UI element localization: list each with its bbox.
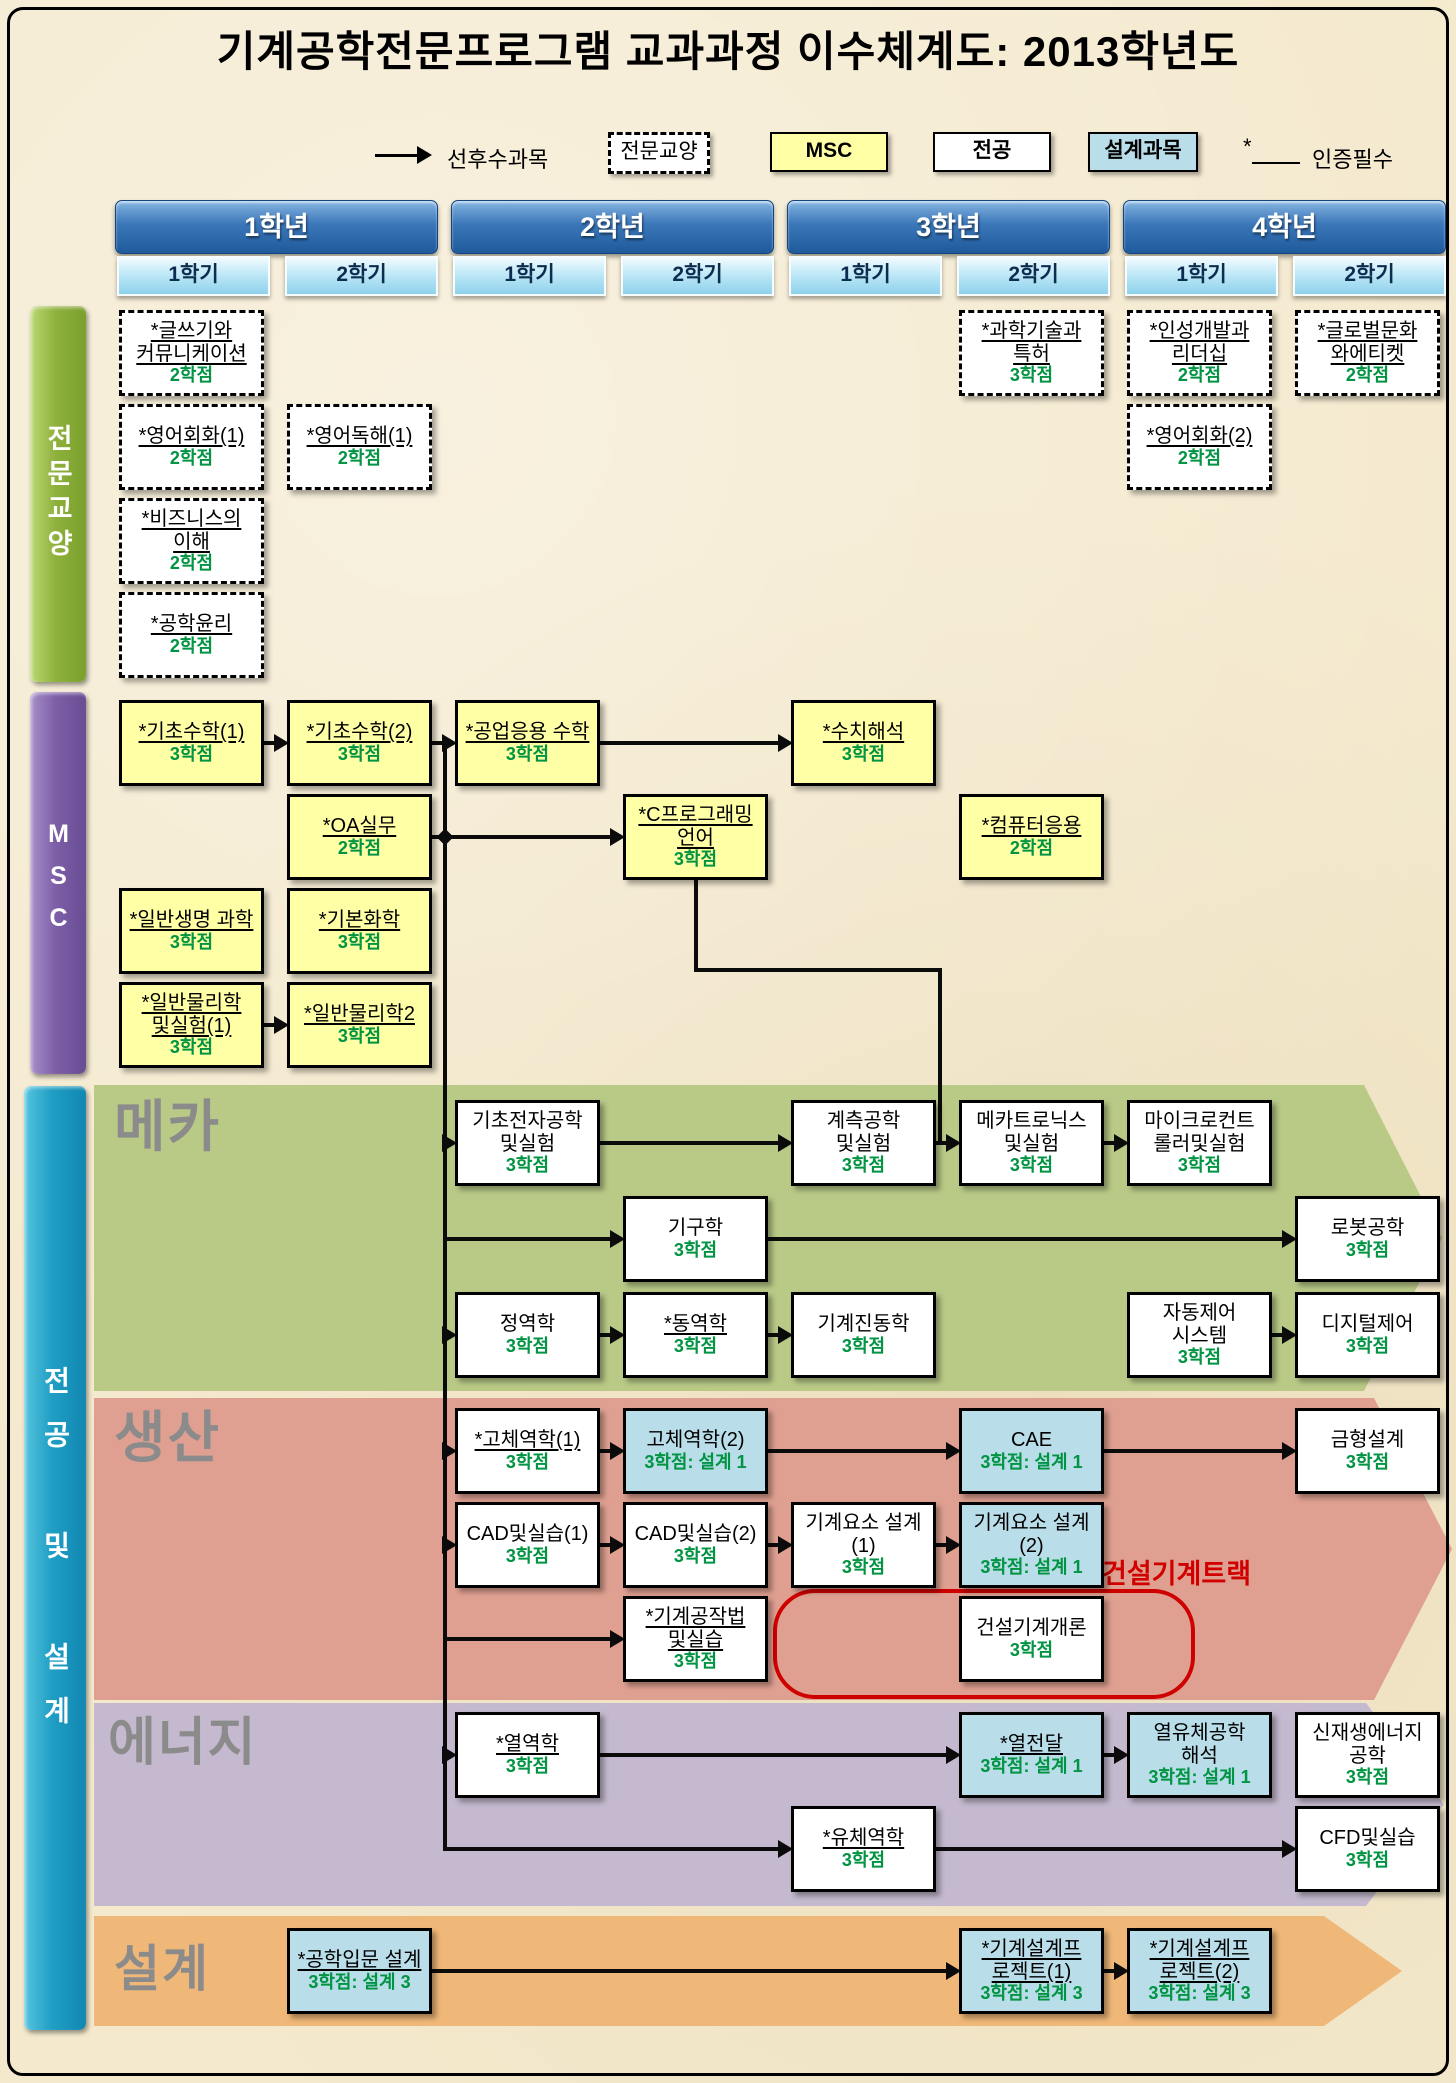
course-name: 신재생에너지 공학 <box>1301 1722 1434 1767</box>
course-name: 금형설계 <box>1331 1429 1405 1451</box>
course-credit: 2학점 <box>338 838 381 859</box>
curriculum-flowchart-page: 기계공학전문프로그램 교과과정 이수체계도: 2013학년도 선후수과목 전문교… <box>0 0 1456 2083</box>
course-name: CFD및실습 <box>1319 1827 1415 1849</box>
course-credit: 3학점 <box>506 1452 549 1473</box>
course-name: *영어회화(1) <box>139 425 245 447</box>
course-ds-intro: *공학입문 설계3학점: 설계 3 <box>287 1928 432 2014</box>
course-name: 로봇공학 <box>1331 1217 1405 1239</box>
course-name: 정역학 <box>500 1313 555 1335</box>
course-en-fluid: *유체역학3학점 <box>791 1806 936 1892</box>
course-msc-math1: *기초수학(1)3학점 <box>119 700 264 786</box>
prereq-line <box>938 968 942 1143</box>
course-name: *C프로그래밍 언어 <box>629 804 762 849</box>
course-credit: 3학점 <box>1010 365 1053 386</box>
prereq-line <box>430 835 613 839</box>
semester-tab-4-1: 1학기 <box>1125 256 1278 296</box>
legend-msc-sample: MSC <box>770 132 888 172</box>
course-name: *OA실무 <box>323 815 396 837</box>
course-credit: 2학점 <box>1178 365 1221 386</box>
course-name: 기초전자공학 및실험 <box>461 1110 594 1155</box>
course-pr-cad1: CAD및실습(1)3학점 <box>455 1502 600 1588</box>
prerequisite-arrowhead-icon <box>417 146 432 164</box>
prereq-line <box>443 1237 613 1241</box>
course-name: 기계요소 설계(2) <box>965 1512 1098 1557</box>
course-ge-engconv1: *영어회화(1)2학점 <box>119 404 264 490</box>
year-header-4: 4학년 <box>1123 200 1446 254</box>
course-name: *열전달 <box>1000 1733 1063 1755</box>
semester-tab-2-1: 1학기 <box>453 256 606 296</box>
prereq-line <box>443 1637 613 1641</box>
course-name: *열역학 <box>496 1733 559 1755</box>
course-credit: 3학점 <box>506 1546 549 1567</box>
course-pr-cad2: CAD및실습(2)3학점 <box>623 1502 768 1588</box>
course-pr-solid1: *고체역학(1)3학점 <box>455 1408 600 1494</box>
course-credit: 3학점 <box>338 744 381 765</box>
band-production-label: 생산 <box>114 1410 221 1466</box>
course-mk-dynamics: *동역학3학점 <box>623 1292 768 1378</box>
prereq-line <box>443 743 447 1849</box>
course-msc-engmath: *공업응용 수학3학점 <box>455 700 600 786</box>
semester-tab-1-2: 2학기 <box>285 256 438 296</box>
legend-prerequisite-label: 선후수과목 <box>447 142 548 174</box>
course-credit: 3학점: 설계 1 <box>644 1452 746 1473</box>
course-credit: 3학점 <box>506 1155 549 1176</box>
band-energy-label: 에너지 <box>108 1717 258 1769</box>
construction-track-label: 건설기계트랙 <box>1102 1552 1251 1591</box>
course-pr-machining: *기계공작법 및실습3학점 <box>623 1596 768 1682</box>
course-name: *비즈니스의 이해 <box>125 508 258 553</box>
semester-tab-3-1: 1학기 <box>789 256 942 296</box>
course-name: *유체역학 <box>823 1827 904 1849</box>
course-name: 고체역학(2) <box>646 1429 744 1451</box>
sidebar-major-design: 전공 및 설계 <box>24 1086 86 2030</box>
course-name: *글쓰기와 커뮤니케이션 <box>125 320 258 365</box>
course-msc-bio: *일반생명 과학3학점 <box>119 888 264 974</box>
course-mk-measure: 계측공학 및실험3학점 <box>791 1100 936 1186</box>
course-name: CAE <box>1011 1429 1052 1451</box>
course-name: *수치해석 <box>823 721 904 743</box>
course-name: 기구학 <box>668 1217 723 1239</box>
semester-tab-3-2: 2학기 <box>957 256 1110 296</box>
course-credit: 3학점 <box>1346 1850 1389 1871</box>
course-credit: 3학점 <box>1346 1336 1389 1357</box>
course-name: 자동제어 시스템 <box>1133 1302 1266 1347</box>
course-name: *기계설계프 로젝트(1) <box>965 1938 1098 1983</box>
course-msc-chem: *기본화학3학점 <box>287 888 432 974</box>
course-credit: 3학점: 설계 1 <box>980 1452 1082 1473</box>
course-name: *글로벌문화 와에티켓 <box>1301 320 1434 365</box>
course-mk-mechatron: 메카트로닉스 및실험3학점 <box>959 1100 1104 1186</box>
course-mk-kinematics: 기구학3학점 <box>623 1196 768 1282</box>
course-name: 건설기계개론 <box>976 1617 1086 1639</box>
course-credit: 3학점 <box>506 1336 549 1357</box>
course-name: *기초수학(1) <box>139 721 245 743</box>
course-credit: 3학점 <box>674 1651 717 1672</box>
course-credit: 3학점 <box>842 1557 885 1578</box>
course-credit: 2학점 <box>170 448 213 469</box>
course-credit: 3학점 <box>1010 1155 1053 1176</box>
prereq-line <box>766 1449 949 1453</box>
course-credit: 3학점 <box>842 1850 885 1871</box>
course-name: *기초수학(2) <box>307 721 413 743</box>
course-name: 메카트로닉스 및실험 <box>965 1110 1098 1155</box>
year-header-1: 1학년 <box>115 200 438 254</box>
course-name: *영어회화(2) <box>1147 425 1253 447</box>
course-name: CAD및실습(1) <box>467 1523 589 1545</box>
course-mk-electronics: 기초전자공학 및실험3학점 <box>455 1100 600 1186</box>
prereq-line <box>598 1141 781 1145</box>
course-credit: 2학점 <box>170 636 213 657</box>
course-ge-engread1: *영어독해(1)2학점 <box>287 404 432 490</box>
course-name: *기계공작법 및실습 <box>629 1606 762 1651</box>
course-msc-phys2: *일반물리학23학점 <box>287 982 432 1068</box>
course-credit: 3학점 <box>842 744 885 765</box>
course-name: *컴퓨터응용 <box>982 815 1082 837</box>
course-name: 기계요소 설계(1) <box>797 1512 930 1557</box>
legend: 선후수과목 전문교양 MSC 전공 설계과목 * 인증필수 <box>0 132 1456 178</box>
band-design-label: 설계 <box>114 1944 210 1994</box>
course-pr-elem2: 기계요소 설계(2)3학점: 설계 1 <box>959 1502 1104 1588</box>
course-credit: 3학점 <box>1010 1640 1053 1661</box>
course-ge-engconv2: *영어회화(2)2학점 <box>1127 404 1272 490</box>
course-credit: 3학점 <box>674 1336 717 1357</box>
course-credit: 3학점: 설계 1 <box>980 1756 1082 1777</box>
semester-tab-1-1: 1학기 <box>117 256 270 296</box>
course-msc-c: *C프로그래밍 언어3학점 <box>623 794 768 880</box>
legend-required-star: * <box>1243 134 1252 160</box>
course-credit: 3학점: 설계 3 <box>308 1972 410 1993</box>
course-credit: 2학점 <box>338 448 381 469</box>
course-credit: 3학점: 설계 3 <box>980 1983 1082 2004</box>
course-credit: 3학점 <box>1178 1155 1221 1176</box>
course-credit: 3학점 <box>170 1037 213 1058</box>
prerequisite-arrow-icon <box>375 154 419 157</box>
course-name: *동역학 <box>664 1313 727 1335</box>
course-credit: 3학점 <box>1178 1347 1221 1368</box>
course-name: 계측공학 및실험 <box>797 1110 930 1155</box>
course-name: *일반생명 과학 <box>130 909 254 931</box>
course-credit: 3학점 <box>1346 1240 1389 1261</box>
legend-design-sample: 설계과목 <box>1088 132 1198 172</box>
prereq-line <box>1102 1449 1285 1453</box>
course-credit: 3학점 <box>506 744 549 765</box>
course-ge-patent: *과학기술과 특허3학점 <box>959 310 1104 396</box>
course-mk-statics: 정역학3학점 <box>455 1292 600 1378</box>
prereq-line <box>766 1237 1285 1241</box>
course-pr-cae: CAE3학점: 설계 1 <box>959 1408 1104 1494</box>
course-msc-numer: *수치해석3학점 <box>791 700 936 786</box>
prereq-line <box>430 1969 949 1973</box>
course-name: CAD및실습(2) <box>635 1523 757 1545</box>
course-mk-robot: 로봇공학3학점 <box>1295 1196 1440 1282</box>
year-header-3: 3학년 <box>787 200 1110 254</box>
course-credit: 3학점 <box>170 932 213 953</box>
course-name: *일반물리학2 <box>304 1003 415 1025</box>
prereq-line <box>934 1847 1285 1851</box>
course-credit: 2학점 <box>1346 365 1389 386</box>
course-credit: 3학점 <box>170 744 213 765</box>
course-credit: 3학점 <box>506 1756 549 1777</box>
course-en-thermofluid: 열유체공학 해석3학점: 설계 1 <box>1127 1712 1272 1798</box>
course-name: *공업응용 수학 <box>466 721 590 743</box>
course-ge-leader: *인성개발과 리더십2학점 <box>1127 310 1272 396</box>
course-en-thermo: *열역학3학점 <box>455 1712 600 1798</box>
course-ge-global: *글로벌문화 와에티켓2학점 <box>1295 310 1440 396</box>
course-credit: 2학점 <box>1010 838 1053 859</box>
course-name: 마이크로컨트 롤러및실험 <box>1133 1110 1266 1155</box>
course-msc-phys1: *일반물리학 및실험(1)3학점 <box>119 982 264 1068</box>
legend-required-label: 인증필수 <box>1312 142 1393 174</box>
legend-required-underline <box>1252 162 1300 164</box>
course-credit: 2학점 <box>170 365 213 386</box>
course-credit: 3학점: 설계 1 <box>980 1557 1082 1578</box>
course-en-renewable: 신재생에너지 공학3학점 <box>1295 1712 1440 1798</box>
course-name: *영어독해(1) <box>307 425 413 447</box>
prereq-line <box>598 1753 949 1757</box>
course-en-cfd: CFD및실습3학점 <box>1295 1806 1440 1892</box>
semester-tab-4-2: 2학기 <box>1293 256 1446 296</box>
course-credit: 2학점 <box>170 553 213 574</box>
prereq-line <box>443 1847 781 1851</box>
course-name: *기본화학 <box>319 909 400 931</box>
course-name: *과학기술과 특허 <box>965 320 1098 365</box>
legend-ge-sample: 전문교양 <box>608 132 710 174</box>
course-msc-comp: *컴퓨터응용2학점 <box>959 794 1104 880</box>
course-ge-biz: *비즈니스의 이해2학점 <box>119 498 264 584</box>
course-credit: 3학점 <box>1346 1452 1389 1473</box>
course-name: *공학입문 설계 <box>298 1949 422 1971</box>
course-credit: 3학점 <box>674 1240 717 1261</box>
course-ds-proj1: *기계설계프 로젝트(1)3학점: 설계 3 <box>959 1928 1104 2014</box>
course-pr-solid2: 고체역학(2)3학점: 설계 1 <box>623 1408 768 1494</box>
band-mecha-label: 메카 <box>114 1099 221 1155</box>
course-credit: 3학점: 설계 1 <box>1148 1767 1250 1788</box>
course-mk-vibration: 기계진동학3학점 <box>791 1292 936 1378</box>
course-mk-micro: 마이크로컨트 롤러및실험3학점 <box>1127 1100 1272 1186</box>
course-ge-writing: *글쓰기와 커뮤니케이션2학점 <box>119 310 264 396</box>
semester-tab-2-2: 2학기 <box>621 256 774 296</box>
course-credit: 3학점: 설계 3 <box>1148 1983 1250 2004</box>
course-name: *일반물리학 및실험(1) <box>125 992 258 1037</box>
sidebar-msc: MSC <box>30 692 86 1074</box>
course-name: *인성개발과 리더십 <box>1133 320 1266 365</box>
prereq-line <box>598 741 781 745</box>
course-name: 기계진동학 <box>818 1313 910 1335</box>
line-junction-icon <box>437 829 454 846</box>
course-credit: 2학점 <box>1178 448 1221 469</box>
course-ge-ethics: *공학윤리2학점 <box>119 592 264 678</box>
course-mk-autoctrl: 자동제어 시스템3학점 <box>1127 1292 1272 1378</box>
course-pr-elem1: 기계요소 설계(1)3학점 <box>791 1502 936 1588</box>
prereq-line <box>694 968 941 972</box>
course-credit: 3학점 <box>338 932 381 953</box>
page-title: 기계공학전문프로그램 교과과정 이수체계도: 2013학년도 <box>0 18 1456 79</box>
course-pr-constr: 건설기계개론3학점 <box>959 1596 1104 1682</box>
course-credit: 3학점 <box>1346 1767 1389 1788</box>
course-name: *기계설계프 로젝트(2) <box>1133 1938 1266 1983</box>
legend-major-sample: 전공 <box>933 132 1051 172</box>
course-pr-mold: 금형설계3학점 <box>1295 1408 1440 1494</box>
sidebar-ge: 전문교양 <box>30 306 86 682</box>
course-ds-proj2: *기계설계프 로젝트(2)3학점: 설계 3 <box>1127 1928 1272 2014</box>
prereq-line <box>694 880 698 970</box>
course-credit: 3학점 <box>674 849 717 870</box>
course-name: *고체역학(1) <box>475 1429 581 1451</box>
course-msc-math2: *기초수학(2)3학점 <box>287 700 432 786</box>
course-name: 디지털제어 <box>1322 1313 1414 1335</box>
course-credit: 3학점 <box>674 1546 717 1567</box>
course-credit: 3학점 <box>842 1155 885 1176</box>
course-msc-oa: *OA실무2학점 <box>287 794 432 880</box>
course-credit: 3학점 <box>842 1336 885 1357</box>
course-credit: 3학점 <box>338 1026 381 1047</box>
year-header-2: 2학년 <box>451 200 774 254</box>
course-en-heat: *열전달3학점: 설계 1 <box>959 1712 1104 1798</box>
course-mk-digital: 디지털제어3학점 <box>1295 1292 1440 1378</box>
course-name: 열유체공학 해석 <box>1133 1722 1266 1767</box>
course-name: *공학윤리 <box>151 613 232 635</box>
